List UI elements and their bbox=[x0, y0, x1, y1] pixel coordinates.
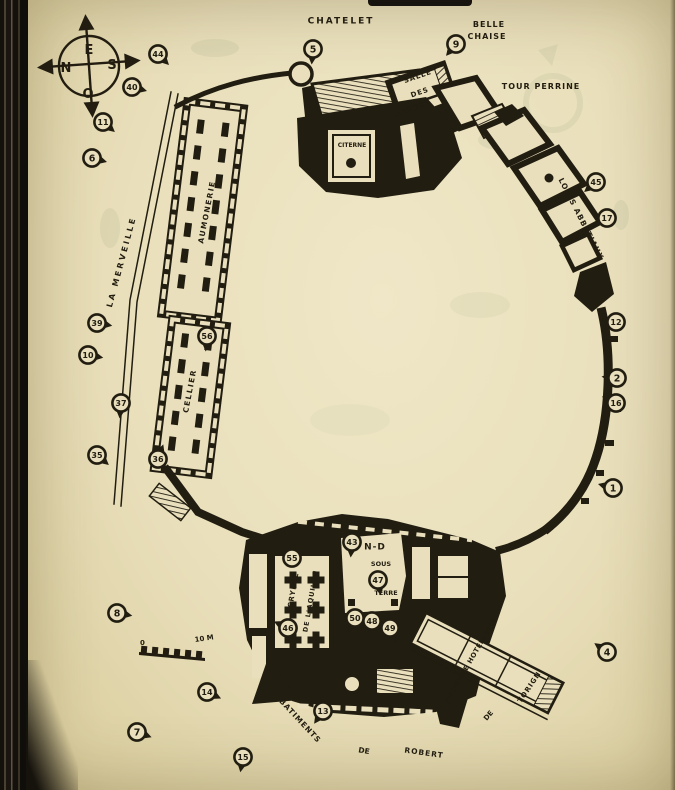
compass-arrow-right bbox=[124, 52, 141, 69]
east-wing bbox=[436, 78, 614, 312]
aumonerie-building bbox=[161, 101, 244, 320]
southwest-inner-wall bbox=[149, 470, 270, 541]
compass-letter-left: N bbox=[61, 61, 72, 76]
compass-rose: E N S O bbox=[33, 12, 145, 124]
compass-arrow-bottom bbox=[84, 101, 101, 118]
scale-zero-label: 0 bbox=[140, 639, 145, 647]
compass-letter-bottom: O bbox=[82, 87, 93, 102]
crypte-room bbox=[275, 556, 329, 648]
book-photo: E N S O 0 10 M CHATELETBELLECHAISETOUR P… bbox=[0, 0, 675, 790]
south-complex bbox=[239, 514, 506, 728]
scale-bar: 0 10 M bbox=[133, 632, 223, 666]
bottom-left-shadow bbox=[26, 660, 78, 790]
compass-arrow-top bbox=[77, 14, 94, 31]
compass-letter-right: S bbox=[107, 58, 116, 73]
east-curtain-wall bbox=[500, 312, 622, 550]
cellier-building bbox=[154, 319, 227, 475]
compass-letter-top: E bbox=[85, 43, 94, 58]
book-binding-edge bbox=[0, 0, 28, 790]
round-tower bbox=[290, 63, 312, 85]
compass-arrow-left bbox=[36, 59, 53, 76]
citerne-dot bbox=[346, 158, 356, 168]
south-staircase bbox=[376, 668, 414, 694]
scale-ten-label: 10 M bbox=[194, 633, 214, 644]
right-edge-shadow bbox=[670, 0, 675, 790]
top-edge-shadow bbox=[368, 0, 472, 6]
